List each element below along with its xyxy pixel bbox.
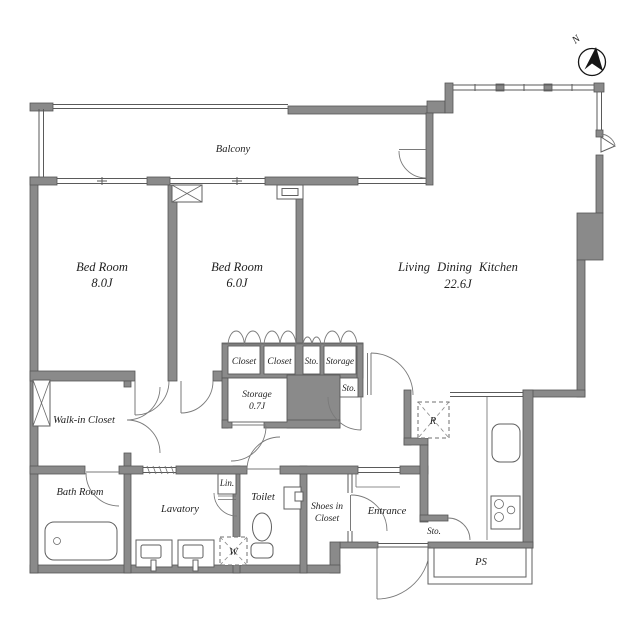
label-sto-entrance: Sto. [427, 526, 441, 536]
label-closet-storage: Storage [326, 356, 354, 366]
label-shoes-line2: Closet [315, 514, 340, 524]
label-closet2: Closet [267, 357, 292, 367]
label-bedroom1-size: 8.0J [91, 276, 114, 290]
label-toilet: Toilet [251, 492, 276, 503]
label-bedroom2-name: Bed Room [211, 260, 263, 274]
label-ldk-name: Living Dining Kitchen [397, 260, 518, 274]
label-walk-in-closet: Walk-in Closet [53, 415, 116, 426]
label-linen: Lin. [219, 478, 234, 488]
vent-box [277, 185, 303, 199]
label-closet-sto: Sto. [305, 356, 319, 366]
label-closet1: Closet [232, 357, 257, 367]
label-bedroom1-name: Bed Room [76, 260, 128, 274]
floor-plan-drawing: N Balcony Bed Room 8.0J Bed Room 6.0J Li… [0, 0, 640, 640]
bathtub [45, 522, 117, 560]
label-ldk-size: 22.6J [444, 277, 473, 291]
label-shoes-line1: Shoes in [311, 502, 343, 512]
label-entrance: Entrance [367, 506, 407, 517]
toilet-bowl [251, 513, 273, 558]
shutter-box [172, 185, 202, 202]
compass-north-label: N [570, 33, 584, 47]
washbasin-1 [136, 540, 172, 571]
washbasin-2 [178, 540, 214, 571]
label-washer: W [229, 547, 239, 558]
label-lavatory: Lavatory [160, 504, 199, 515]
wic-pillar-box [33, 380, 50, 426]
label-balcony: Balcony [216, 144, 251, 155]
label-storage-size: 0.7J [249, 402, 266, 412]
label-sto-niche: Sto. [342, 383, 356, 393]
label-refrigerator: R [429, 416, 437, 427]
compass: N [570, 33, 606, 76]
toilet-hand-basin [284, 487, 303, 509]
label-storage-name: Storage [242, 390, 272, 400]
windows-and-rails [39, 84, 602, 547]
floor-plan: N Balcony Bed Room 8.0J Bed Room 6.0J Li… [0, 0, 640, 640]
kitchen-sink [492, 424, 520, 462]
label-bath: Bath Room [57, 487, 104, 498]
label-ps: PS [474, 557, 487, 568]
label-bedroom2-size: 6.0J [226, 276, 249, 290]
kitchen-stove [491, 496, 520, 529]
